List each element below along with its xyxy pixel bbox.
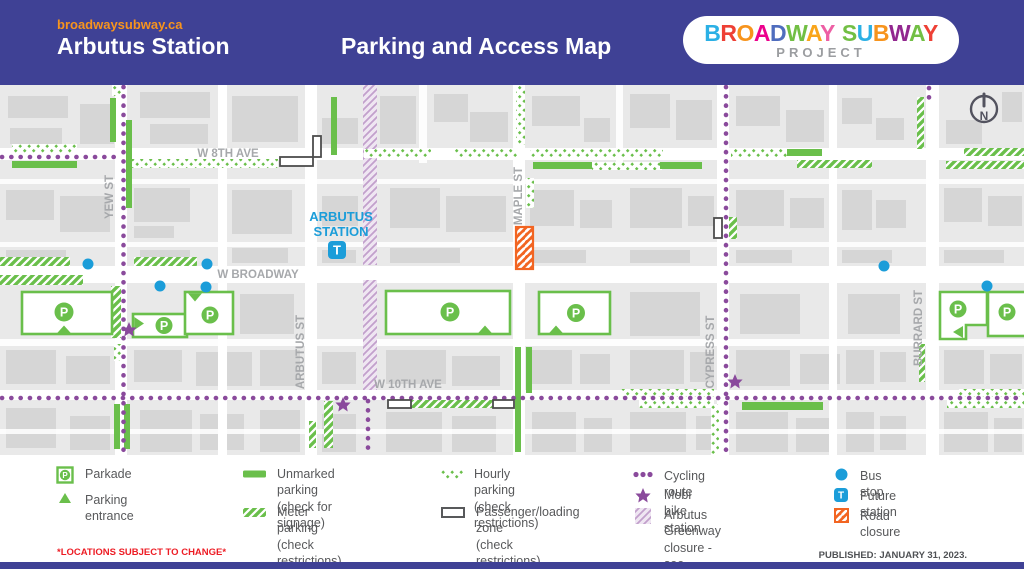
cycling-route-icon — [633, 471, 653, 478]
parkade-icon: P — [56, 466, 74, 484]
street-label-w10th: W 10TH AVE — [374, 379, 442, 391]
bus-stop-icon — [155, 281, 166, 292]
bus-stop-icon — [201, 282, 212, 293]
loading-zone-icon — [441, 507, 465, 518]
bus-stop-icon — [202, 259, 213, 270]
compass: N — [971, 94, 997, 123]
future-station-icon: T — [833, 488, 849, 502]
website-url: broadwaysubway.ca — [57, 17, 182, 32]
map-title: Parking and Access Map — [341, 33, 611, 60]
unmarked-parking-icon — [243, 470, 266, 478]
logo-wordmark: BROADWAYSUBWAY — [704, 22, 938, 45]
road-closure-icon — [833, 508, 849, 523]
road-closure-marker — [516, 227, 533, 269]
legend-label: Meter parking — [277, 505, 318, 535]
legend-item-road-closure: Road closure — [833, 508, 900, 541]
map-canvas: P P P P P P P ARBUTUS STATION — [0, 85, 1024, 455]
station-label-line2: STATION — [313, 224, 368, 239]
street-label-burrard: BURRARD ST — [913, 290, 925, 366]
legend-label: Parking entrance — [85, 492, 134, 525]
legend-label: Hourly parking — [474, 467, 515, 497]
page-title: Arbutus Station — [57, 33, 230, 60]
bottom-accent-bar — [0, 562, 1024, 569]
svg-text:T: T — [838, 491, 844, 502]
legend-item-meter-parking: Meter parking (check restrictions) — [243, 504, 342, 569]
parkade-p-label: P — [954, 303, 962, 317]
parkade-p-label: P — [446, 306, 454, 320]
poster: broadwaysubway.ca Arbutus Station Parkin… — [0, 0, 1024, 569]
svg-text:P: P — [62, 471, 68, 480]
parkade-p-label: P — [60, 306, 68, 320]
parkade-p-label: P — [160, 319, 168, 333]
parkade-p-label: P — [1003, 306, 1011, 320]
legend-label: Unmarked parking — [277, 467, 335, 497]
street-label-w8th: W 8TH AVE — [197, 148, 259, 160]
legend-label: Road closure — [860, 508, 900, 541]
legend-label: Arbutus Greenway closure - — [664, 508, 721, 555]
legend-item-parkade: P Parkade — [56, 466, 132, 484]
street-label-yew: YEW ST — [104, 175, 116, 219]
street-label-cypress: CYPRESS ST — [705, 316, 717, 389]
broadway-subway-logo: BROADWAYSUBWAY PROJECT — [683, 16, 959, 64]
legend-item-parking-entrance: Parking entrance — [56, 492, 134, 525]
legend-item-loading-zone: Passenger/loading zone (check restrictio… — [441, 504, 580, 569]
bus-stop-icon — [833, 468, 849, 481]
station-label-line1: ARBUTUS — [309, 209, 373, 224]
bus-stop-icon — [83, 259, 94, 270]
parking-entrance-icon — [56, 492, 74, 504]
compass-n-label: N — [980, 109, 989, 123]
bus-stop-icon — [982, 281, 993, 292]
parkade-p-label: P — [206, 309, 214, 323]
hourly-parking-icon — [441, 470, 463, 479]
greenway-closure-icon — [633, 508, 653, 524]
legend-label: Passenger/loading zone — [476, 505, 580, 535]
legend-item-greenway-closure: Arbutus Greenway closure - see Cypress/Y… — [633, 507, 736, 569]
mobi-star-icon — [633, 487, 653, 504]
legend-label: Parkade — [85, 466, 132, 482]
street-label-maple: MAPLE ST — [513, 167, 525, 225]
parkade-p-label: P — [572, 307, 580, 321]
meter-parking-icon — [243, 508, 266, 517]
logo-project-label: PROJECT — [776, 46, 865, 59]
future-station-t: T — [333, 243, 341, 258]
legend: P Parkade Parking entrance Unmarked park… — [0, 460, 1024, 546]
published-date: PUBLISHED: JANUARY 31, 2023. — [819, 550, 967, 561]
map-svg: P P P P P P P ARBUTUS STATION — [0, 85, 1024, 455]
locations-disclaimer: *LOCATIONS SUBJECT TO CHANGE* — [57, 547, 226, 558]
street-label-arbutus: ARBUTUS ST — [295, 315, 307, 389]
header-bar: broadwaysubway.ca Arbutus Station Parkin… — [0, 0, 1024, 85]
bus-stop-icon — [879, 261, 890, 272]
street-label-broadway: W BROADWAY — [217, 269, 299, 281]
